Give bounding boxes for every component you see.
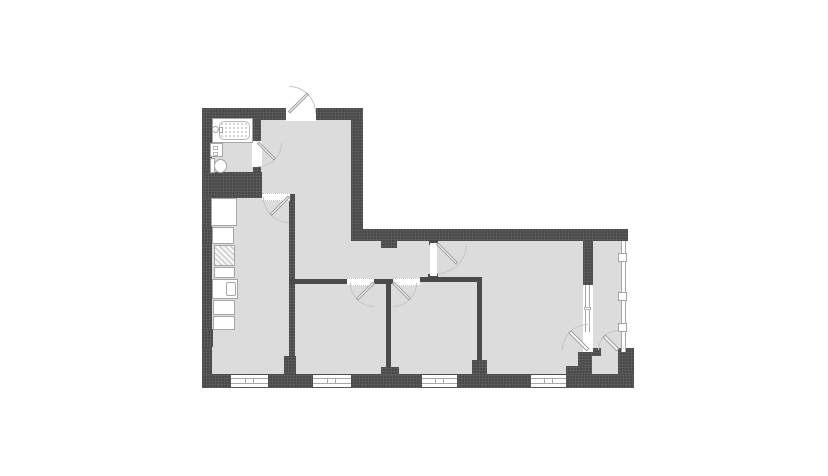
kitchen-sink [226,282,236,296]
wall-living-divider [477,282,482,362]
balcony-glazing-mullion [618,292,627,301]
kitchen-window [231,375,268,387]
bathtub-basin [219,121,250,140]
kitchen-counter-cabinet [214,267,235,278]
floor-plan-canvas [0,0,828,476]
toilet-bowl [214,159,227,173]
wall-balcony-step-2 [566,366,592,374]
living-room-door-opening [430,243,437,276]
stove [214,245,235,266]
bath-faucet-spout [219,127,223,133]
duct-shaft-block [204,172,262,198]
wall-upper-wing-right [351,120,363,229]
wall-hall-pillar [381,241,397,248]
living-room-window [531,375,566,387]
wall-living-divider-footing [472,360,487,374]
wall-left-nub-lower [203,329,213,347]
wall-left-nub-upper [203,228,212,243]
bath-faucet-icon [212,126,219,133]
wall-kitchen-right [289,194,295,374]
wall-bedroom-divider-footing [381,367,399,375]
wall-balcony-stub [583,241,593,285]
wall-bedroom-divider [386,284,391,368]
kitchen-counter-cabinet [212,227,234,244]
wall-bathroom-right-upper [253,120,261,141]
wall-kitchen-right-footing [284,356,296,374]
balcony-glazing-mullion [618,323,627,332]
kitchen-counter-cabinet [213,300,235,315]
kitchen-counter-cabinet [213,316,235,330]
washing-machine [210,143,223,157]
kitchen-counter-cabinet [211,198,237,226]
bedroom-left-window [313,375,351,387]
balcony-window-mid-tick [584,307,591,310]
bedroom-middle-window [422,375,457,387]
balcony-glazing-mullion [618,253,627,262]
wall-hall-segment-a [289,279,347,284]
wall-balcony-step-1 [578,352,592,367]
wall-top-right-wing [351,229,628,241]
